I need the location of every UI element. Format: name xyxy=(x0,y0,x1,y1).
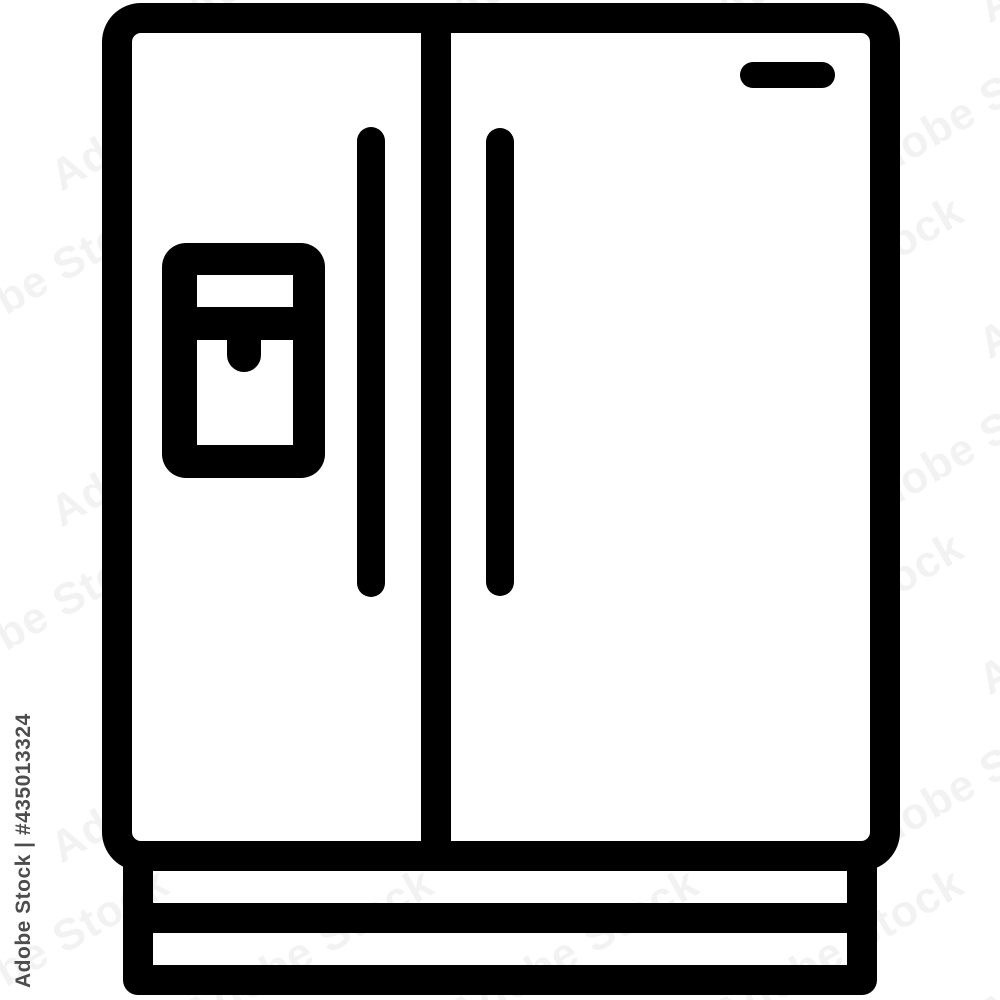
fridge-base xyxy=(126,864,874,980)
watermark-attribution: Adobe Stock | #435013324 xyxy=(12,713,36,988)
stock-image-canvas: Adobe StockAdobe StockAdobe StockAdobe S… xyxy=(0,0,1000,1000)
refrigerator-icon xyxy=(0,0,1000,1000)
refrigerator-icon-svg xyxy=(0,0,1000,1000)
water-dispenser xyxy=(162,243,325,478)
dispenser-display-window xyxy=(197,275,293,307)
